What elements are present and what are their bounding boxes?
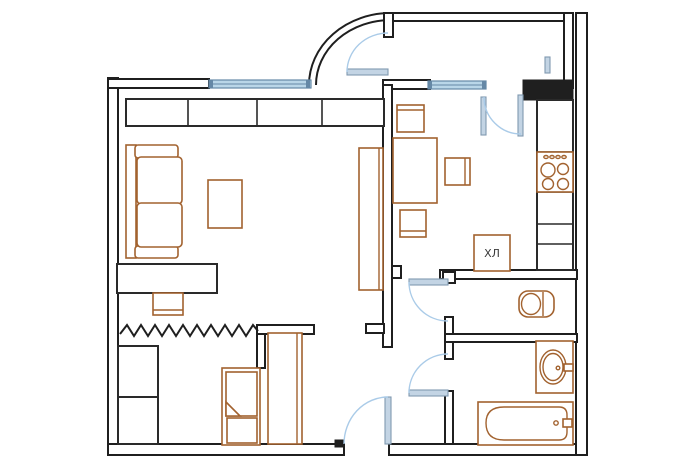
window-cap [209, 80, 213, 88]
fridge: ХЛ [474, 235, 510, 271]
floor-plan: ХЛ [0, 0, 700, 462]
stove [537, 152, 573, 192]
toilet [519, 291, 554, 317]
wall-top-kitchen-corner [523, 80, 573, 100]
wall-bath-left-bottom [445, 391, 453, 444]
stool-seat [153, 293, 183, 315]
wall-right [576, 13, 587, 455]
window-cap [482, 81, 486, 89]
entry-door-swing [344, 397, 388, 444]
balcony-door-swing [347, 33, 388, 72]
bed-pillow [227, 418, 257, 443]
bathroom-door-leaf [409, 390, 448, 396]
wc-door-swing [409, 282, 448, 321]
living-room [117, 99, 384, 315]
sofa-cushion [137, 203, 182, 247]
wardrobe-row [126, 99, 384, 126]
entry-door-jamb-cap [335, 440, 344, 447]
chair [400, 210, 426, 237]
wc [519, 291, 554, 317]
bathroom-door-swing [409, 354, 448, 393]
chair [445, 158, 470, 185]
sink-faucet [564, 364, 573, 371]
dining-table [393, 138, 437, 203]
entry-door-leaf [385, 397, 391, 444]
sofa-cushion [137, 157, 182, 204]
bathtub [478, 402, 573, 445]
wall-top-living [108, 79, 209, 88]
desk-stool [153, 293, 183, 315]
balcony-wall-right [564, 13, 573, 88]
wall-corridor-jamb [392, 266, 401, 278]
desk [117, 264, 217, 293]
wc-door-leaf [409, 279, 448, 285]
floor-plan-drawing: ХЛ [0, 0, 700, 462]
wall-bath-left-top [445, 342, 453, 359]
sofa-back [126, 145, 136, 258]
kitchen-balcony-door-swing [484, 97, 521, 134]
cabinet [118, 397, 158, 444]
kitchen-balcony-door-cap [481, 97, 486, 135]
sofa-armrest [135, 145, 178, 158]
wall-living-flange [366, 324, 384, 333]
balcony-wall-top [389, 13, 573, 21]
bathroom [478, 341, 573, 445]
bathtub-faucet [563, 419, 572, 427]
hall-wardrobe [268, 333, 302, 444]
bed [222, 368, 260, 445]
chair [397, 105, 424, 132]
sink [536, 341, 573, 393]
fridge-label: ХЛ [484, 247, 500, 260]
accordion-partition-zigzag [120, 325, 258, 336]
dining-set [393, 105, 470, 237]
balcony-door-leaf [347, 69, 388, 75]
kitchen-balcony-door-leaf [518, 95, 523, 136]
wall-nursery-leg [257, 334, 265, 368]
cabinet [118, 346, 158, 397]
balcony-casement-leaf [545, 57, 550, 73]
window-cap [428, 81, 432, 89]
coffee-table [208, 180, 242, 228]
window-cap [306, 80, 310, 88]
sofa [126, 145, 182, 258]
nursery [118, 333, 302, 445]
tall-wardrobe [359, 148, 383, 290]
sofa-armrest [135, 246, 178, 258]
